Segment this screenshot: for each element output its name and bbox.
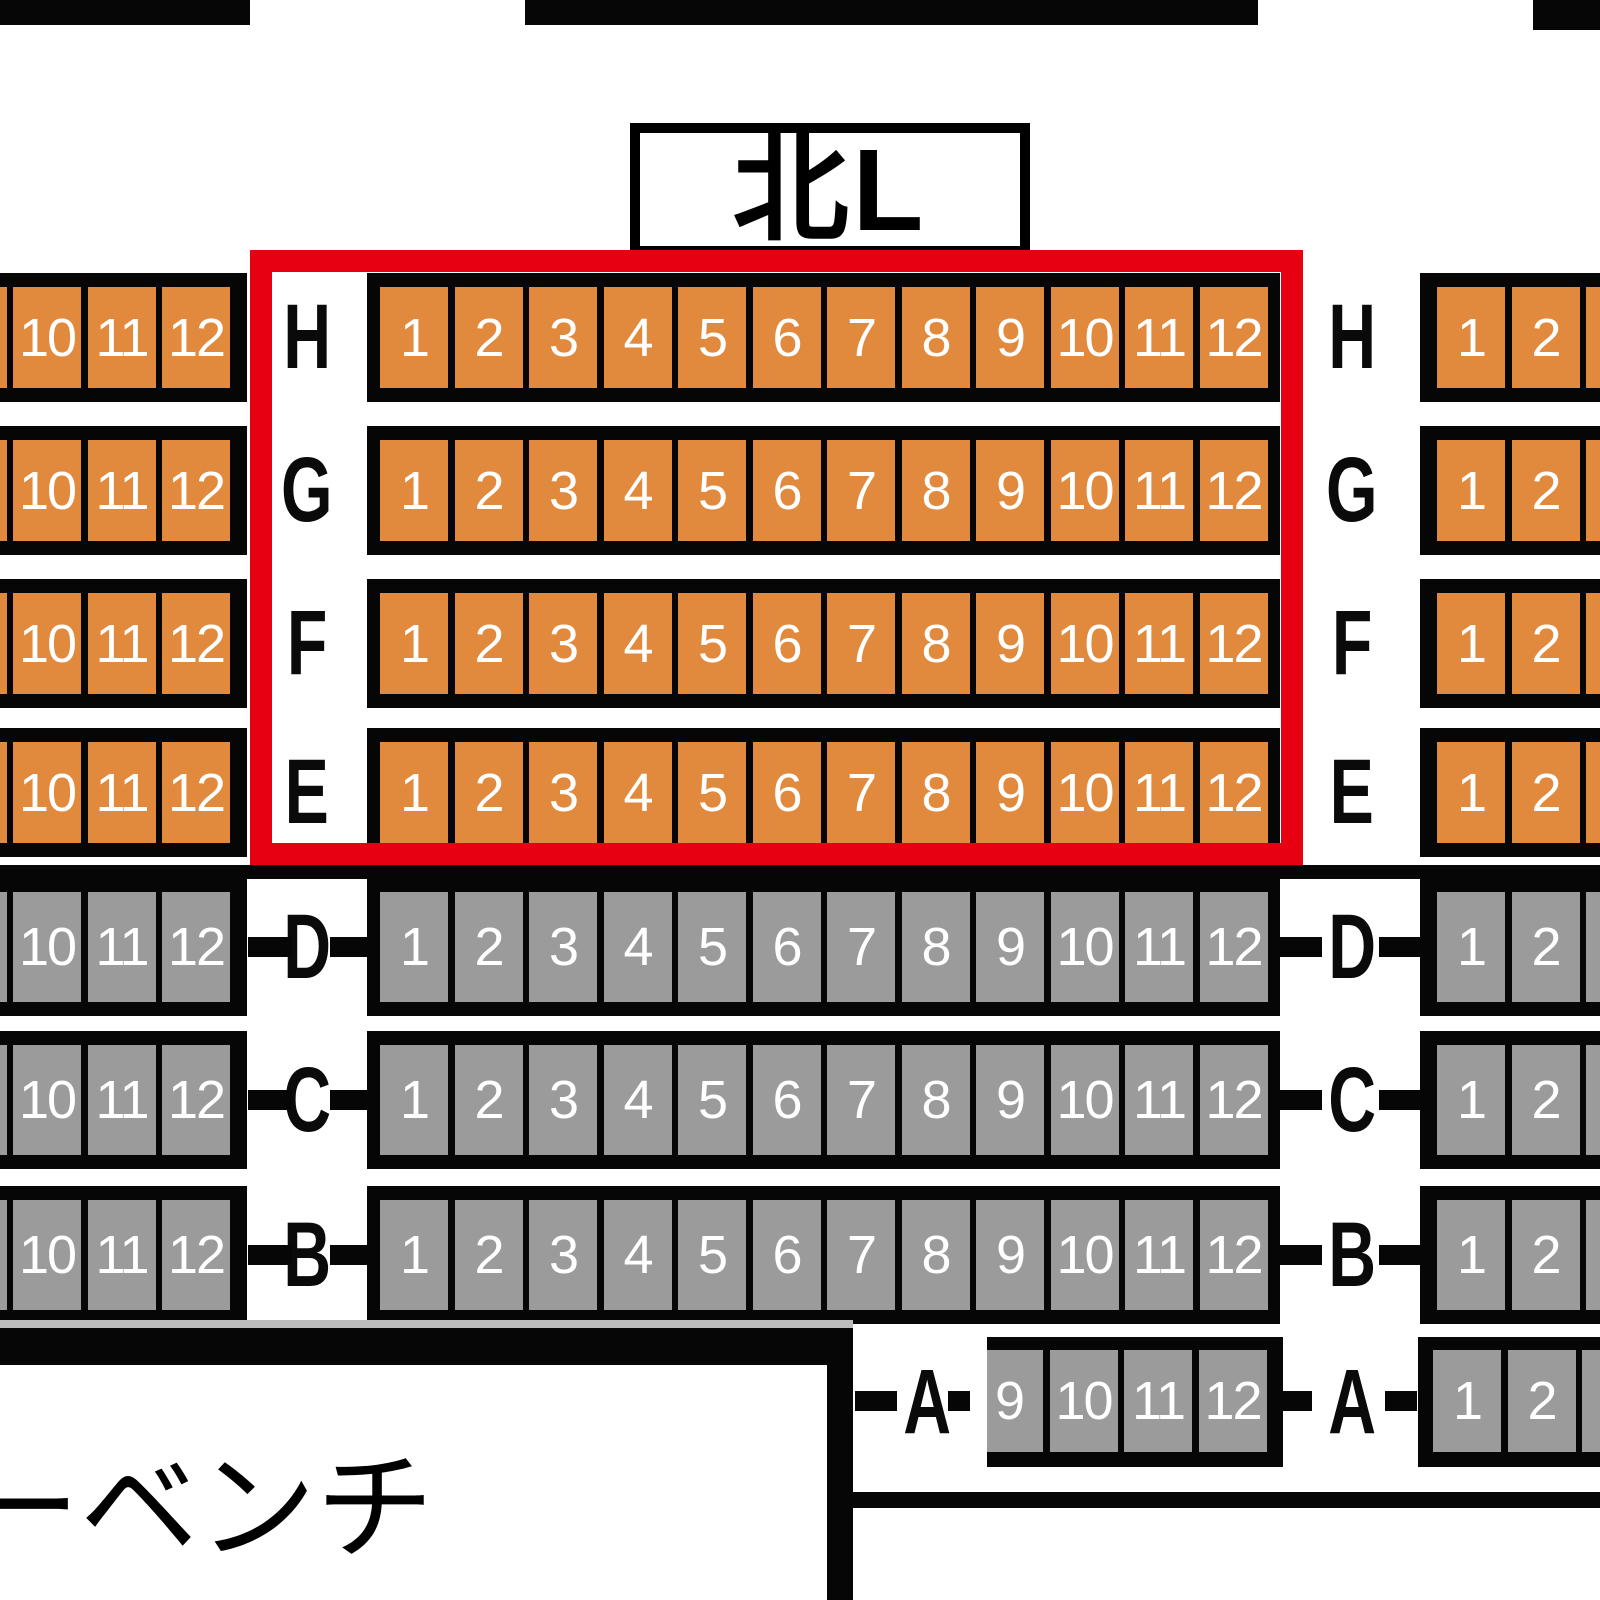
seat-F-1[interactable]: 1 [1437, 593, 1505, 694]
seat-C-9[interactable]: 9 [0, 1045, 7, 1155]
seat-D-8[interactable]: 8 [902, 892, 970, 1002]
row-C-tick-left-1 [330, 1090, 372, 1110]
row-D-tick-left-0 [248, 937, 292, 957]
row-A-tick-middle-1 [948, 1391, 970, 1411]
seat-A-11[interactable]: 11 [1124, 1350, 1192, 1452]
seat-B-4[interactable]: 4 [604, 1200, 672, 1310]
seat-G-10[interactable]: 10 [13, 440, 81, 541]
seat-C-11[interactable]: 11 [1125, 1045, 1193, 1155]
seat-B-9[interactable]: 9 [976, 1200, 1044, 1310]
seat-D-9[interactable]: 9 [0, 892, 7, 1002]
row-C-tick-left-0 [248, 1090, 292, 1110]
seat-D-12[interactable]: 12 [1200, 892, 1268, 1002]
seat-B-2[interactable]: 2 [455, 1200, 523, 1310]
seat-D-2[interactable]: 2 [1512, 892, 1580, 1002]
seat-D-11[interactable]: 11 [1125, 892, 1193, 1002]
bench-gray-strip [0, 1320, 853, 1328]
seat-C-3[interactable]: 3 [529, 1045, 597, 1155]
seat-B-12[interactable]: 12 [162, 1200, 230, 1310]
seat-A-10[interactable]: 10 [1050, 1350, 1118, 1452]
row-label-E-right: E [1292, 728, 1412, 857]
seat-C-5[interactable]: 5 [678, 1045, 746, 1155]
row-D-tick-left-1 [330, 937, 372, 957]
row-label-F-right: F [1292, 579, 1412, 708]
row-label-H-right: H [1292, 273, 1412, 402]
seat-C-11[interactable]: 11 [88, 1045, 156, 1155]
seat-C-12[interactable]: 12 [162, 1045, 230, 1155]
row-C-tick-right-1 [1379, 1090, 1423, 1110]
seat-D-3[interactable]: 3 [1586, 892, 1600, 1002]
seat-C-2[interactable]: 2 [455, 1045, 523, 1155]
seat-D-6[interactable]: 6 [753, 892, 821, 1002]
row-letter: C [1328, 1048, 1376, 1153]
seat-F-11[interactable]: 11 [88, 593, 156, 694]
bench-wall-horizontal [0, 1328, 853, 1365]
seat-C-9[interactable]: 9 [976, 1045, 1044, 1155]
row-letter: B [1328, 1203, 1376, 1308]
seat-C-7[interactable]: 7 [827, 1045, 895, 1155]
bench-wall-vertical [827, 1328, 853, 1600]
divider-line [0, 865, 1600, 879]
seat-D-10[interactable]: 10 [13, 892, 81, 1002]
seat-B-6[interactable]: 6 [753, 1200, 821, 1310]
seat-B-2[interactable]: 2 [1512, 1200, 1580, 1310]
seat-C-2[interactable]: 2 [1512, 1045, 1580, 1155]
seat-D-4[interactable]: 4 [604, 892, 672, 1002]
row-letter: A [903, 1350, 951, 1455]
row-letter: H [1328, 285, 1376, 390]
seat-H-2[interactable]: 2 [1512, 287, 1580, 388]
seat-E-9[interactable]: 9 [0, 742, 7, 843]
seat-A-1[interactable]: 1 [1433, 1350, 1501, 1452]
seat-C-10[interactable]: 10 [1051, 1045, 1119, 1155]
seat-D-1[interactable]: 1 [1437, 892, 1505, 1002]
seat-A-3[interactable]: 3 [1582, 1350, 1600, 1452]
seat-B-1[interactable]: 1 [1437, 1200, 1505, 1310]
row-B-tick-left-1 [330, 1245, 372, 1265]
seat-B-9[interactable]: 9 [0, 1200, 7, 1310]
seat-F-10[interactable]: 10 [13, 593, 81, 694]
seat-B-11[interactable]: 11 [88, 1200, 156, 1310]
seat-G-11[interactable]: 11 [88, 440, 156, 541]
seating-chart: 北L 9101112123456789101112123HH9101112123… [0, 0, 1600, 1600]
row-letter: D [1328, 895, 1376, 1000]
seat-H-9[interactable]: 9 [0, 287, 7, 388]
highlight-box [250, 250, 1303, 865]
seat-B-3[interactable]: 3 [529, 1200, 597, 1310]
seat-H-10[interactable]: 10 [13, 287, 81, 388]
row-B-tick-left-0 [248, 1245, 292, 1265]
seat-E-2[interactable]: 2 [1512, 742, 1580, 843]
seat-C-1[interactable]: 1 [380, 1045, 448, 1155]
seat-D-1[interactable]: 1 [380, 892, 448, 1002]
seat-D-11[interactable]: 11 [88, 892, 156, 1002]
seat-B-10[interactable]: 10 [13, 1200, 81, 1310]
seat-E-1[interactable]: 1 [1437, 742, 1505, 843]
row-B-tick-right-0 [1278, 1245, 1322, 1265]
seat-G-9[interactable]: 9 [0, 440, 7, 541]
seat-B-3[interactable]: 3 [1586, 1200, 1600, 1310]
seat-C-1[interactable]: 1 [1437, 1045, 1505, 1155]
seat-H-1[interactable]: 1 [1437, 287, 1505, 388]
row-C-tick-right-0 [1278, 1090, 1322, 1110]
seat-D-10[interactable]: 10 [1051, 892, 1119, 1002]
seat-C-6[interactable]: 6 [753, 1045, 821, 1155]
seat-F-12[interactable]: 12 [162, 593, 230, 694]
seat-G-3[interactable]: 3 [1586, 440, 1600, 541]
seat-H-11[interactable]: 11 [88, 287, 156, 388]
seat-D-7[interactable]: 7 [827, 892, 895, 1002]
seat-G-1[interactable]: 1 [1437, 440, 1505, 541]
seat-B-7[interactable]: 7 [827, 1200, 895, 1310]
seat-C-4[interactable]: 4 [604, 1045, 672, 1155]
seat-B-12[interactable]: 12 [1200, 1200, 1268, 1310]
seat-C-3[interactable]: 3 [1586, 1045, 1600, 1155]
row-A-tick-right-1 [1385, 1391, 1417, 1411]
seat-G-12[interactable]: 12 [162, 440, 230, 541]
seat-E-11[interactable]: 11 [88, 742, 156, 843]
seat-B-8[interactable]: 8 [902, 1200, 970, 1310]
seat-C-8[interactable]: 8 [902, 1045, 970, 1155]
seat-D-3[interactable]: 3 [529, 892, 597, 1002]
seat-D-2[interactable]: 2 [455, 892, 523, 1002]
row-label-G-right: G [1292, 426, 1412, 555]
seat-D-5[interactable]: 5 [678, 892, 746, 1002]
row-A-tick-right-0 [1280, 1391, 1312, 1411]
row-letter: E [1330, 740, 1374, 845]
seat-E-12[interactable]: 12 [162, 742, 230, 843]
row-D-tick-right-0 [1278, 937, 1322, 957]
seat-F-3[interactable]: 3 [1586, 593, 1600, 694]
seat-H-12[interactable]: 12 [162, 287, 230, 388]
seat-H-3[interactable]: 3 [1586, 287, 1600, 388]
seat-C-12[interactable]: 12 [1200, 1045, 1268, 1155]
front-wall [853, 1492, 1600, 1508]
row-letter: F [1332, 591, 1372, 696]
seat-B-5[interactable]: 5 [678, 1200, 746, 1310]
seat-F-9[interactable]: 9 [0, 593, 7, 694]
seat-C-10[interactable]: 10 [13, 1045, 81, 1155]
seat-E-10[interactable]: 10 [13, 742, 81, 843]
row-B-tick-right-1 [1379, 1245, 1423, 1265]
seat-D-12[interactable]: 12 [162, 892, 230, 1002]
row-letter: G [1326, 438, 1378, 543]
row-D-tick-right-1 [1379, 937, 1423, 957]
seat-G-2[interactable]: 2 [1512, 440, 1580, 541]
seat-B-11[interactable]: 11 [1125, 1200, 1193, 1310]
seat-B-1[interactable]: 1 [380, 1200, 448, 1310]
seat-D-9[interactable]: 9 [976, 892, 1044, 1002]
seat-A-12[interactable]: 12 [1199, 1350, 1267, 1452]
row-A-tick-middle-0 [855, 1391, 897, 1411]
seat-A-2[interactable]: 2 [1508, 1350, 1576, 1452]
seat-B-10[interactable]: 10 [1051, 1200, 1119, 1310]
seat-E-3[interactable]: 3 [1586, 742, 1600, 843]
row-letter: A [1328, 1350, 1376, 1455]
bench-label: ーベンチ [0, 1450, 434, 1568]
seat-F-2[interactable]: 2 [1512, 593, 1580, 694]
